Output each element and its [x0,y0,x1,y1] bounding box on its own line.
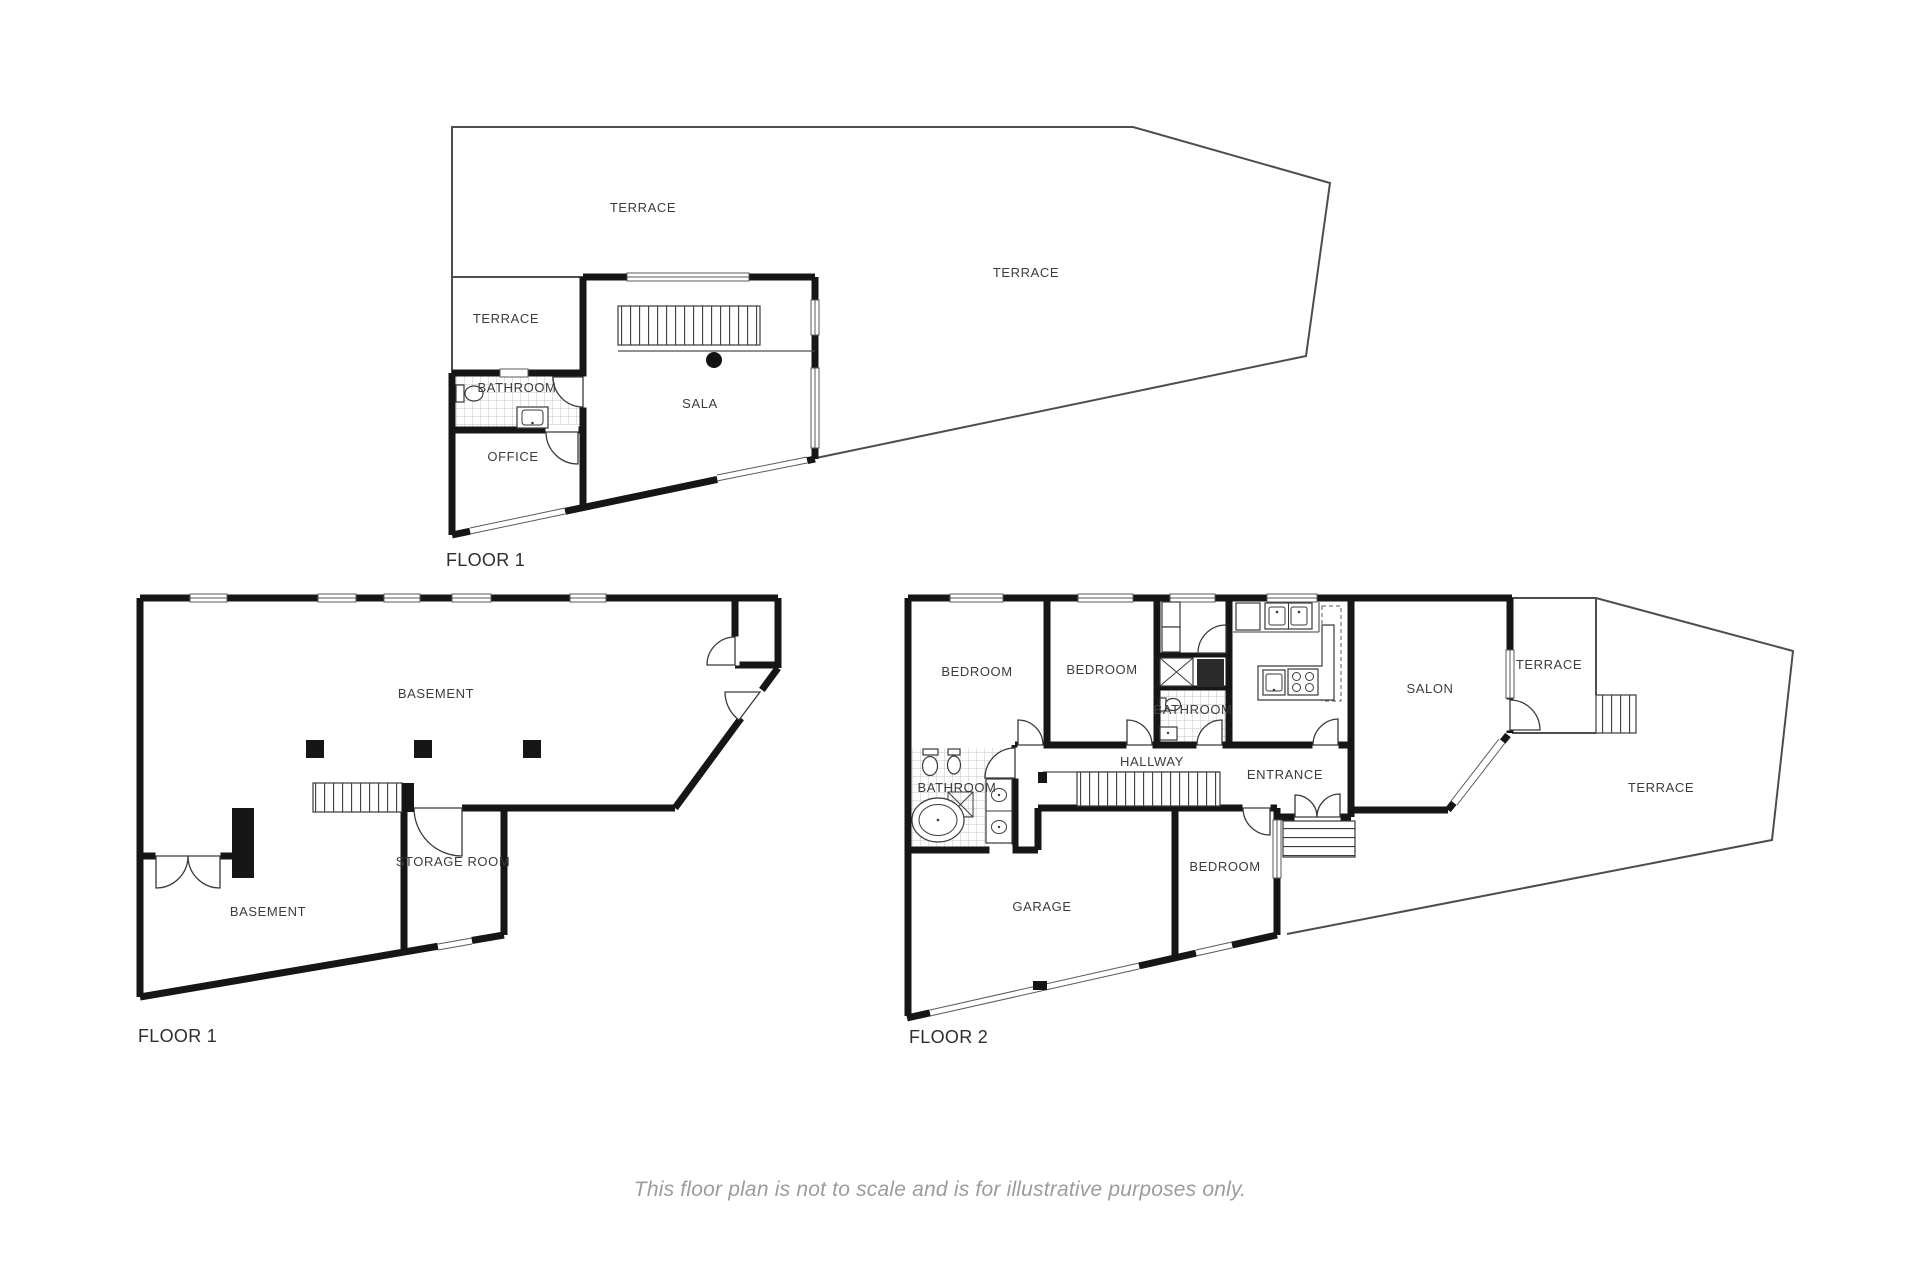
bedroom-middle-label: BEDROOM [1066,662,1137,677]
terrace-stairs-symbol [1596,695,1636,733]
floor1-lower-plan: BASEMENT BASEMENT STORAGE ROOM FLOOR 1 [125,580,815,1055]
terrace-upper-label: TERRACE [1516,657,1582,672]
hallway-label: HALLWAY [1120,754,1184,769]
kitchen-sink-icon [1265,603,1312,629]
entrance-label: ENTRANCE [1247,767,1323,782]
terrace-top-label: TERRACE [610,200,676,215]
island-sink-icon [1263,670,1285,695]
main-bathroom-label: BATHROOM [918,780,997,795]
terrace-left-label: TERRACE [473,311,539,326]
floor2-plan: BEDROOM BEDROOM BATHROOM BATHROOM HALLWA… [895,580,1810,1055]
bidet-icon [948,749,961,774]
salon-label: SALON [1406,681,1453,696]
hall-bathroom-label: BATHROOM [1154,702,1233,717]
staircase-symbol [313,783,414,812]
floor1-upper-tag: FLOOR 1 [446,550,525,570]
office-door [546,432,578,464]
stove-icon [1288,669,1318,695]
terrace-right-label: TERRACE [993,265,1059,280]
staircase-symbol [618,306,815,368]
toilet-icon [923,749,939,776]
floor-plan-sheet: { "page": { "background": "#ffffff", "di… [0,0,1920,1280]
storage-room-label: STORAGE ROOM [396,854,511,869]
bedroom-lower-label: BEDROOM [1189,859,1260,874]
salon-terrace-door [1510,700,1540,730]
basement-lower-label: BASEMENT [230,904,306,919]
floor1-lower-tag: FLOOR 1 [138,1026,217,1046]
duct-symbol [1197,659,1224,687]
office-label: OFFICE [487,449,538,464]
column-dot [706,352,722,368]
basement-main-label: BASEMENT [398,686,474,701]
sala-label: SALA [682,396,718,411]
disclaimer-text: This floor plan is not to scale and is f… [0,1178,1880,1202]
appliance-icon [1236,603,1260,630]
bathroom-label: BATHROOM [478,380,557,395]
bathtub-icon [912,798,964,842]
entrance-staircase-symbol [1283,821,1355,857]
bedroom-left-label: BEDROOM [941,664,1012,679]
sink-icon [1160,727,1177,740]
sink-icon [517,407,548,428]
garage-label: GARAGE [1012,899,1071,914]
floor2-tag: FLOOR 2 [909,1027,988,1047]
floor1-upper-plan: TERRACE TERRACE TERRACE BATHROOM SALA OF… [440,100,1355,580]
shower-symbol [1160,658,1193,686]
terrace-main-label: TERRACE [1628,780,1694,795]
